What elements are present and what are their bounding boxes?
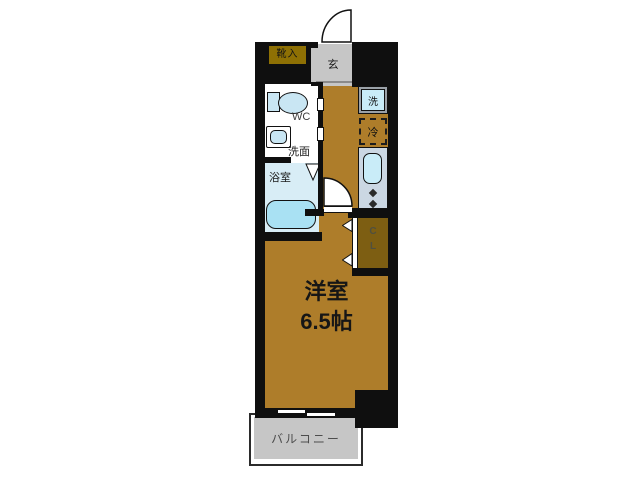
washroom-door [317, 127, 324, 141]
wc-washroom: WC 洗面 [263, 84, 319, 158]
entrance-door-swing-icon [321, 9, 353, 44]
kitchen-sink-icon [363, 153, 382, 184]
refrigerator-label: 冷 [368, 124, 379, 140]
wall-closet-bottom [352, 268, 398, 276]
closet: C L [358, 218, 388, 268]
washbasin-bowl-icon [270, 130, 287, 144]
shoe-storage-label: 靴入 [269, 46, 306, 64]
wall-pillar-bottom-right [355, 390, 398, 428]
refrigerator: 冷 [359, 118, 387, 145]
room-door-threshold [324, 206, 352, 213]
wall-washroom-bath [263, 157, 291, 163]
entrance-label: 玄 [311, 44, 355, 72]
washing-machine-label: 洗 [361, 89, 385, 111]
stove-burner-icon [369, 189, 377, 197]
wc-door [317, 98, 324, 111]
entrance-area: 玄 [311, 44, 355, 86]
balcony-label: バルコニー [271, 430, 341, 447]
wall-kitchen-bottom [348, 208, 398, 218]
kitchen-counter [358, 147, 388, 209]
floor-plan: 玄 WC 洗面 浴室 バルコニー 靴入 [0, 0, 640, 480]
wall-bath-bottom [255, 232, 322, 241]
bathroom-label: 浴室 [269, 169, 291, 185]
balcony-window-right [307, 413, 335, 416]
closet-letter-top: C [358, 226, 388, 237]
closet-folding-door-icon [342, 219, 353, 232]
main-room-size: 6.5帖 [265, 307, 388, 337]
stove-burner-icon [369, 200, 377, 208]
washing-machine: 洗 [358, 86, 388, 114]
bathroom: 浴室 [263, 163, 319, 232]
room-door-swing-icon [322, 177, 354, 208]
balcony-deck: バルコニー [254, 417, 358, 459]
washroom-label: 洗面 [288, 143, 310, 159]
main-room-label: 洋室 6.5帖 [265, 277, 388, 336]
closet-folding-door-icon [342, 253, 353, 267]
wc-label: WC [292, 111, 310, 123]
main-room-name: 洋室 [265, 277, 388, 307]
balcony: バルコニー [249, 413, 363, 466]
wall-door-cap [305, 209, 324, 216]
balcony-window-left [278, 410, 305, 413]
wall-left [255, 42, 265, 414]
closet-letter-bottom: L [358, 241, 388, 252]
wall-top-mid [311, 42, 318, 48]
wall-wc-right [318, 84, 323, 163]
